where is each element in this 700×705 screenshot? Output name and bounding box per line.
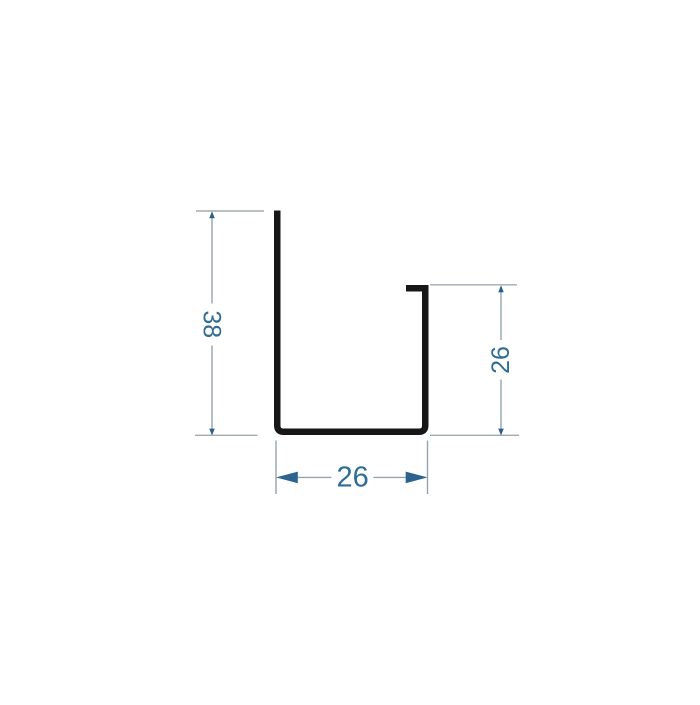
svg-text:38: 38 xyxy=(197,310,225,338)
svg-text:26: 26 xyxy=(336,462,368,494)
svg-text:26: 26 xyxy=(487,346,515,374)
